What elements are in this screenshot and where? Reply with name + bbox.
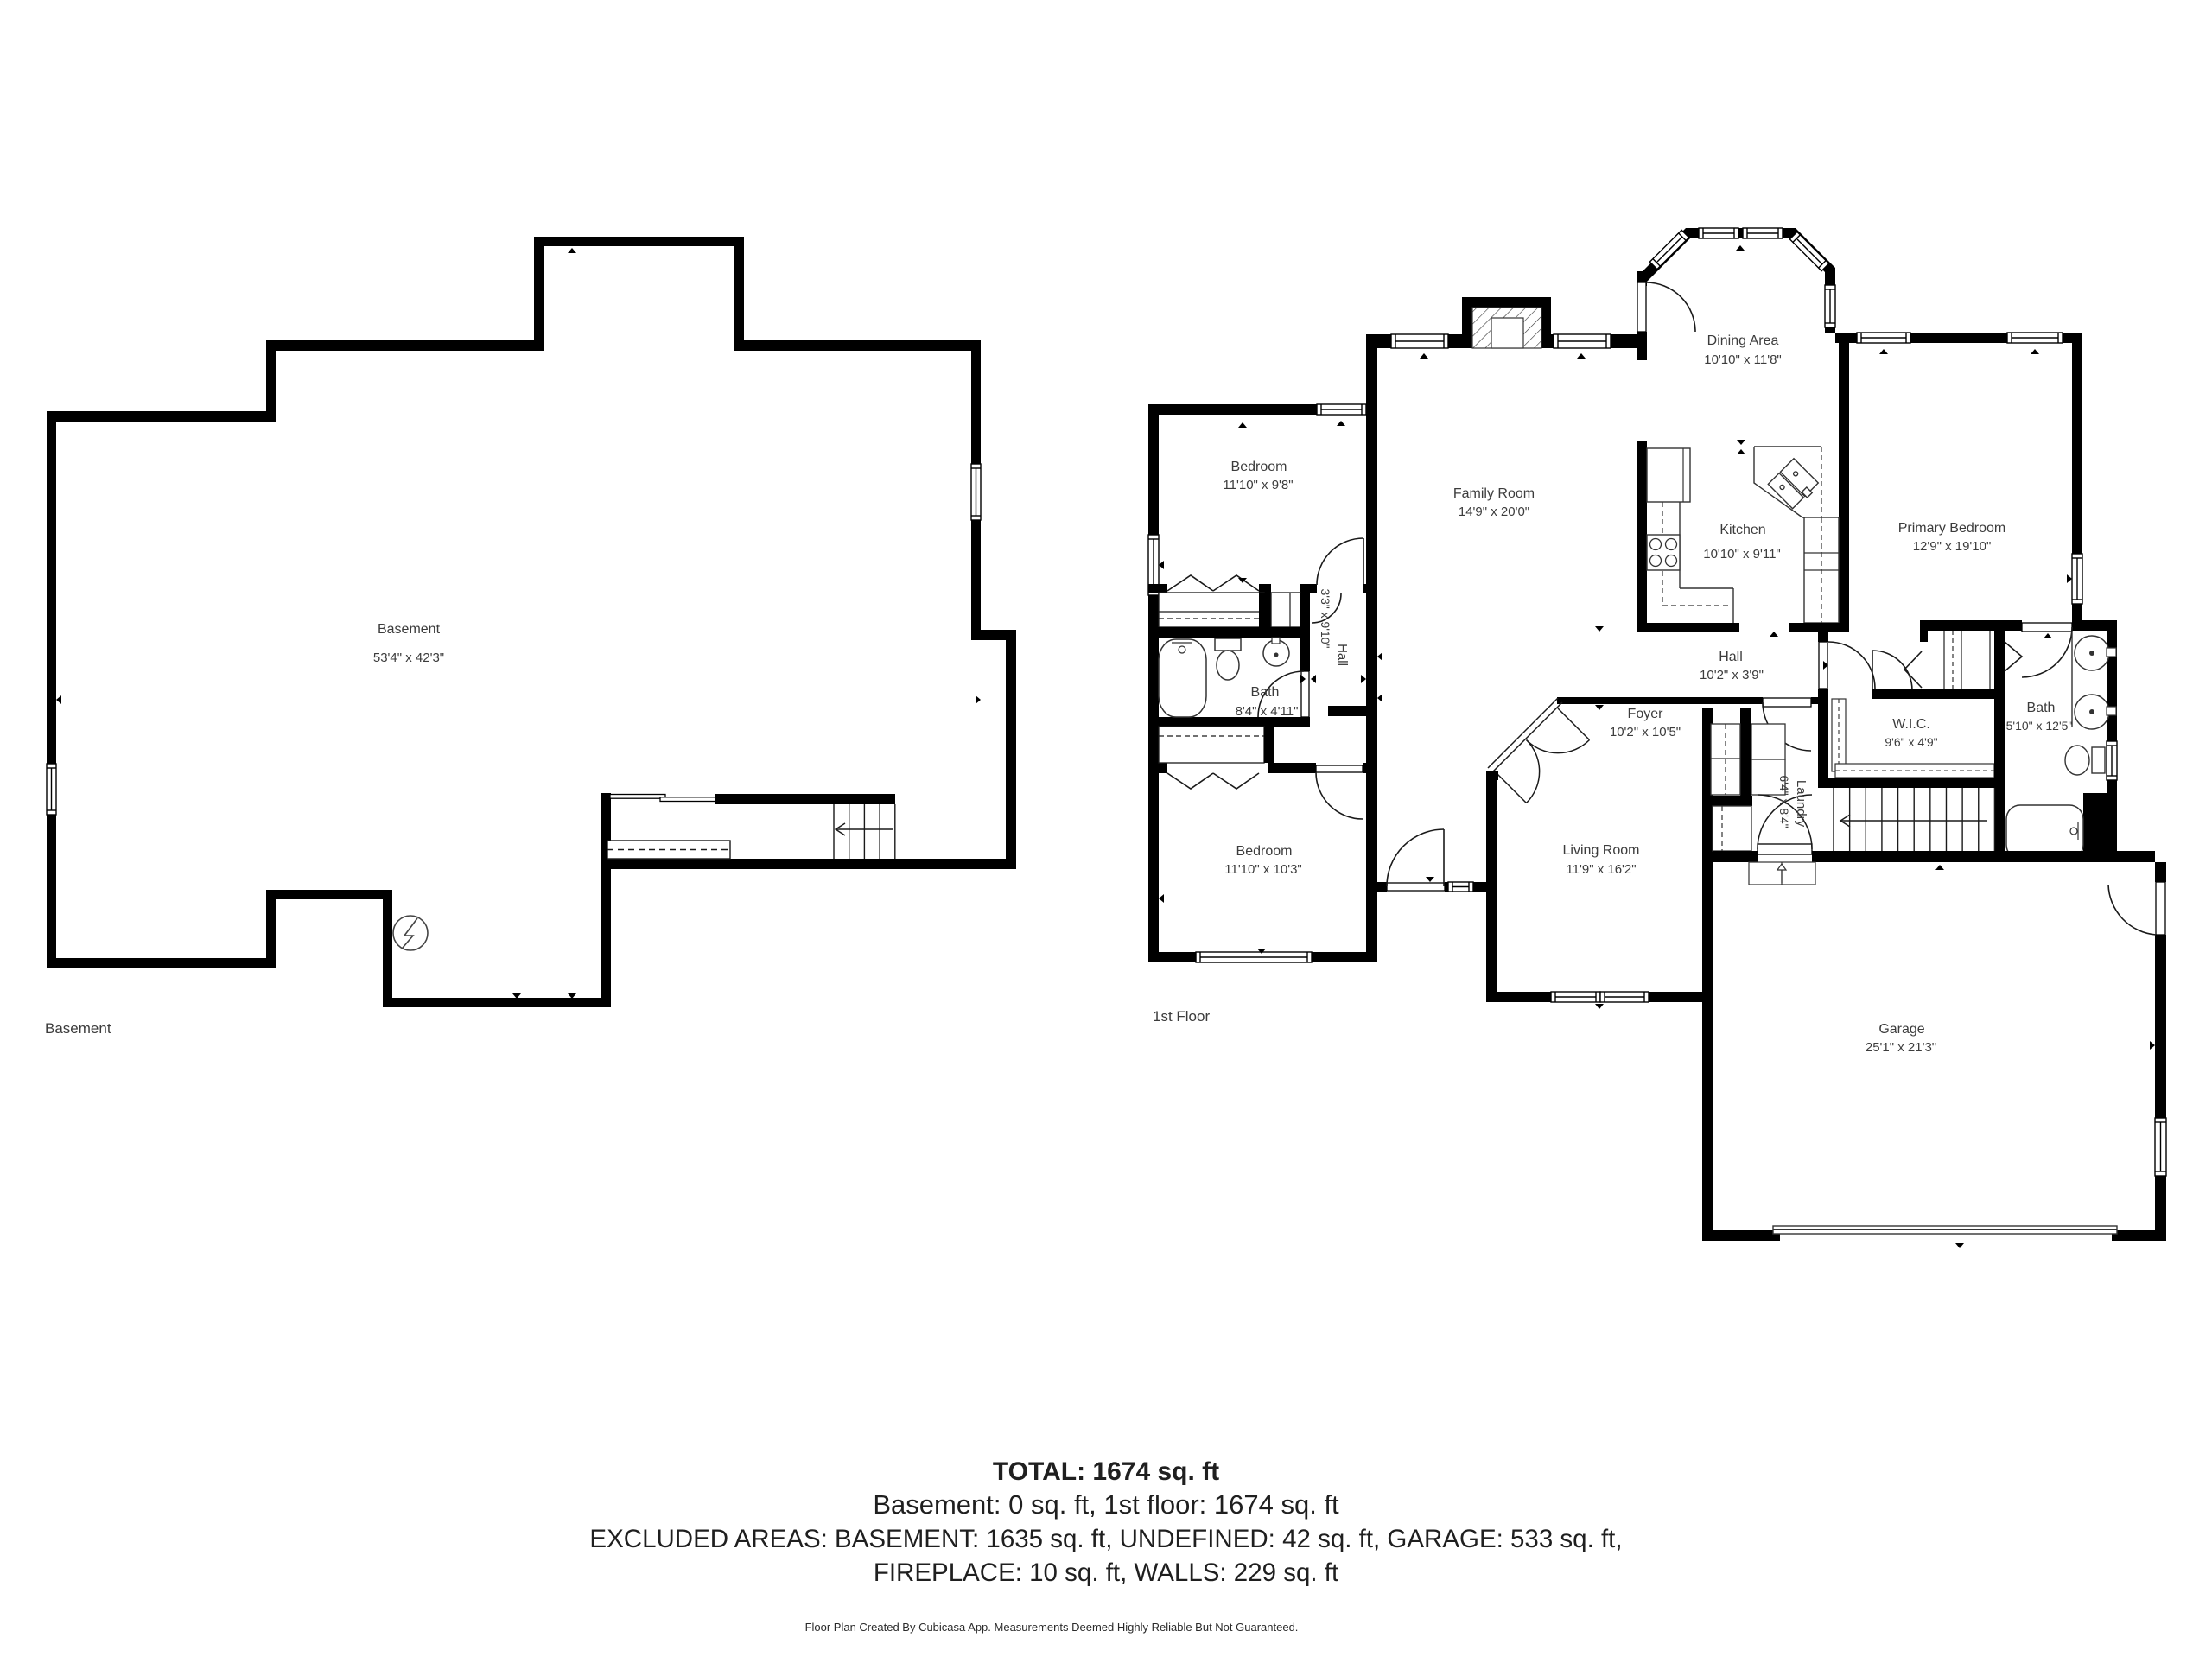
svg-text:FIREPLACE: 10 sq. ft, WALLS: 2: FIREPLACE: 10 sq. ft, WALLS: 229 sq. ft: [874, 1558, 1338, 1587]
svg-text:W.I.C.: W.I.C.: [1892, 717, 1930, 732]
svg-text:Garage: Garage: [1878, 1022, 1924, 1037]
svg-text:Dining Area: Dining Area: [1707, 333, 1779, 348]
svg-text:5'10" x 12'5": 5'10" x 12'5": [2006, 719, 2073, 733]
svg-text:Primary Bedroom: Primary Bedroom: [1898, 521, 2005, 536]
svg-text:Basement: 0 sq. ft, 1st floor:: Basement: 0 sq. ft, 1st floor: 1674 sq. …: [873, 1489, 1339, 1520]
svg-text:Family Room: Family Room: [1453, 486, 1535, 501]
svg-text:Basement: Basement: [378, 622, 441, 637]
svg-text:12'9" x 19'10": 12'9" x 19'10": [1913, 539, 1992, 554]
svg-text:3'3" x 9'10": 3'3" x 9'10": [1319, 589, 1332, 649]
svg-text:Hall: Hall: [1335, 644, 1350, 666]
svg-text:Bedroom: Bedroom: [1231, 460, 1287, 474]
svg-text:10'10" x 9'11": 10'10" x 9'11": [1703, 547, 1781, 562]
svg-text:14'9" x 20'0": 14'9" x 20'0": [1459, 505, 1529, 519]
svg-text:Bath: Bath: [1251, 685, 1280, 700]
svg-text:Basement: Basement: [45, 1020, 111, 1037]
svg-text:Foyer: Foyer: [1628, 707, 1664, 721]
svg-text:8'4" x 4'11": 8'4" x 4'11": [1236, 704, 1299, 719]
svg-text:Bedroom: Bedroom: [1236, 844, 1293, 859]
svg-text:TOTAL: 1674 sq. ft: TOTAL: 1674 sq. ft: [993, 1457, 1219, 1486]
svg-text:Living Room: Living Room: [1563, 843, 1640, 858]
svg-text:11'10" x 9'8": 11'10" x 9'8": [1223, 478, 1293, 492]
svg-text:11'10" x 10'3": 11'10" x 10'3": [1224, 862, 1302, 877]
svg-text:10'2" x 10'5": 10'2" x 10'5": [1610, 725, 1681, 739]
svg-text:Floor Plan Created By Cubicasa: Floor Plan Created By Cubicasa App. Meas…: [805, 1621, 1299, 1634]
svg-text:Bath: Bath: [2027, 701, 2056, 715]
svg-text:1st Floor: 1st Floor: [1153, 1008, 1210, 1025]
svg-text:25'1" x 21'3": 25'1" x 21'3": [1866, 1040, 1936, 1055]
svg-text:EXCLUDED AREAS: BASEMENT: 1635: EXCLUDED AREAS: BASEMENT: 1635 sq. ft, U…: [589, 1525, 1622, 1553]
svg-text:Kitchen: Kitchen: [1719, 523, 1765, 537]
svg-text:11'9" x 16'2": 11'9" x 16'2": [1566, 862, 1636, 877]
svg-text:Laundry: Laundry: [1794, 780, 1808, 828]
svg-text:6'4" x 8'4": 6'4" x 8'4": [1777, 775, 1791, 828]
svg-text:Hall: Hall: [1719, 650, 1743, 664]
svg-text:10'2" x 3'9": 10'2" x 3'9": [1700, 668, 1764, 682]
svg-text:9'6" x 4'9": 9'6" x 4'9": [1885, 735, 1937, 749]
svg-text:53'4" x 42'3": 53'4" x 42'3": [373, 651, 444, 665]
svg-text:10'10" x 11'8": 10'10" x 11'8": [1704, 352, 1782, 367]
